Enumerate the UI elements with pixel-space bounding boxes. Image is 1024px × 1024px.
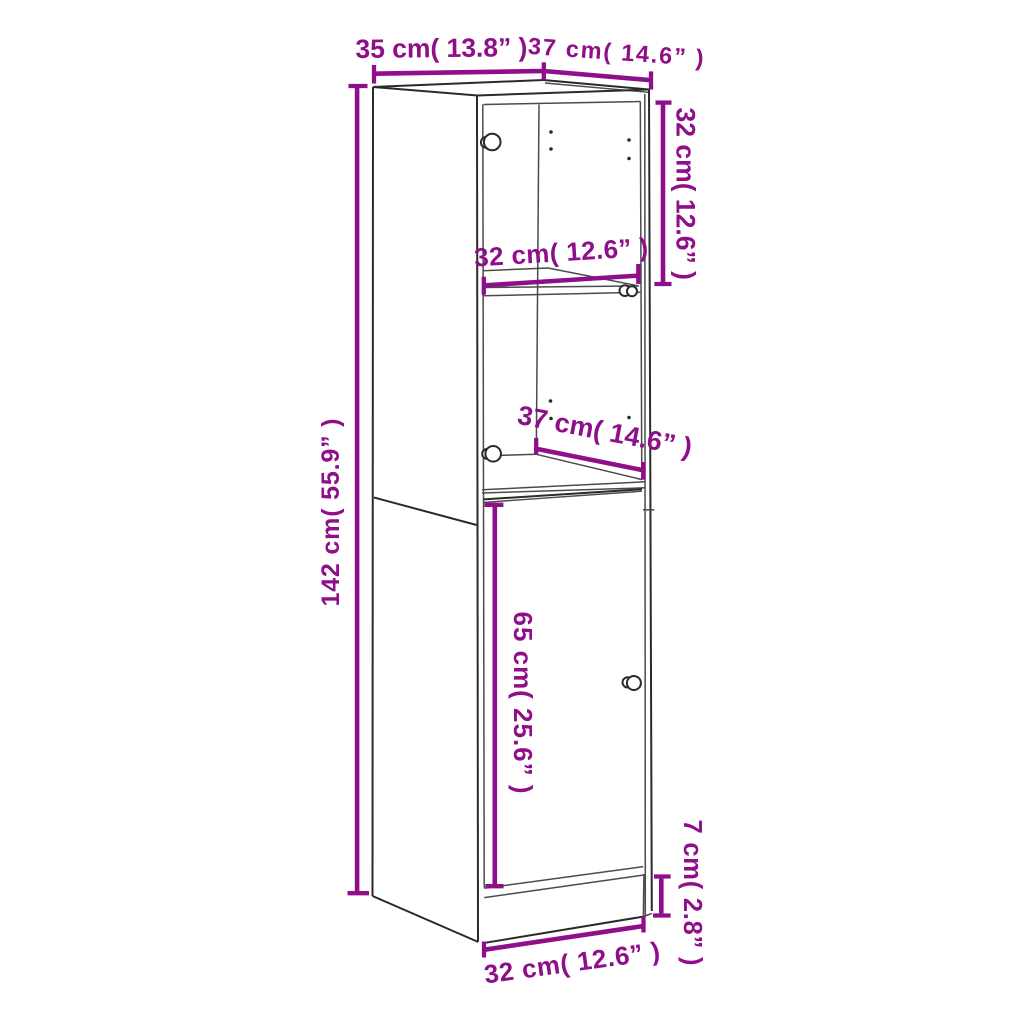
svg-text:32 cm( 12.6” ): 32 cm( 12.6” ): [671, 108, 701, 281]
svg-text:35 cm( 13.8” ): 35 cm( 13.8” ): [355, 32, 527, 64]
svg-text:142 cm( 55.9” ): 142 cm( 55.9” ): [317, 419, 345, 607]
svg-text:7 cm( 2.8” ): 7 cm( 2.8” ): [678, 820, 706, 966]
svg-text:65 cm( 25.6” ): 65 cm( 25.6” ): [508, 612, 538, 794]
